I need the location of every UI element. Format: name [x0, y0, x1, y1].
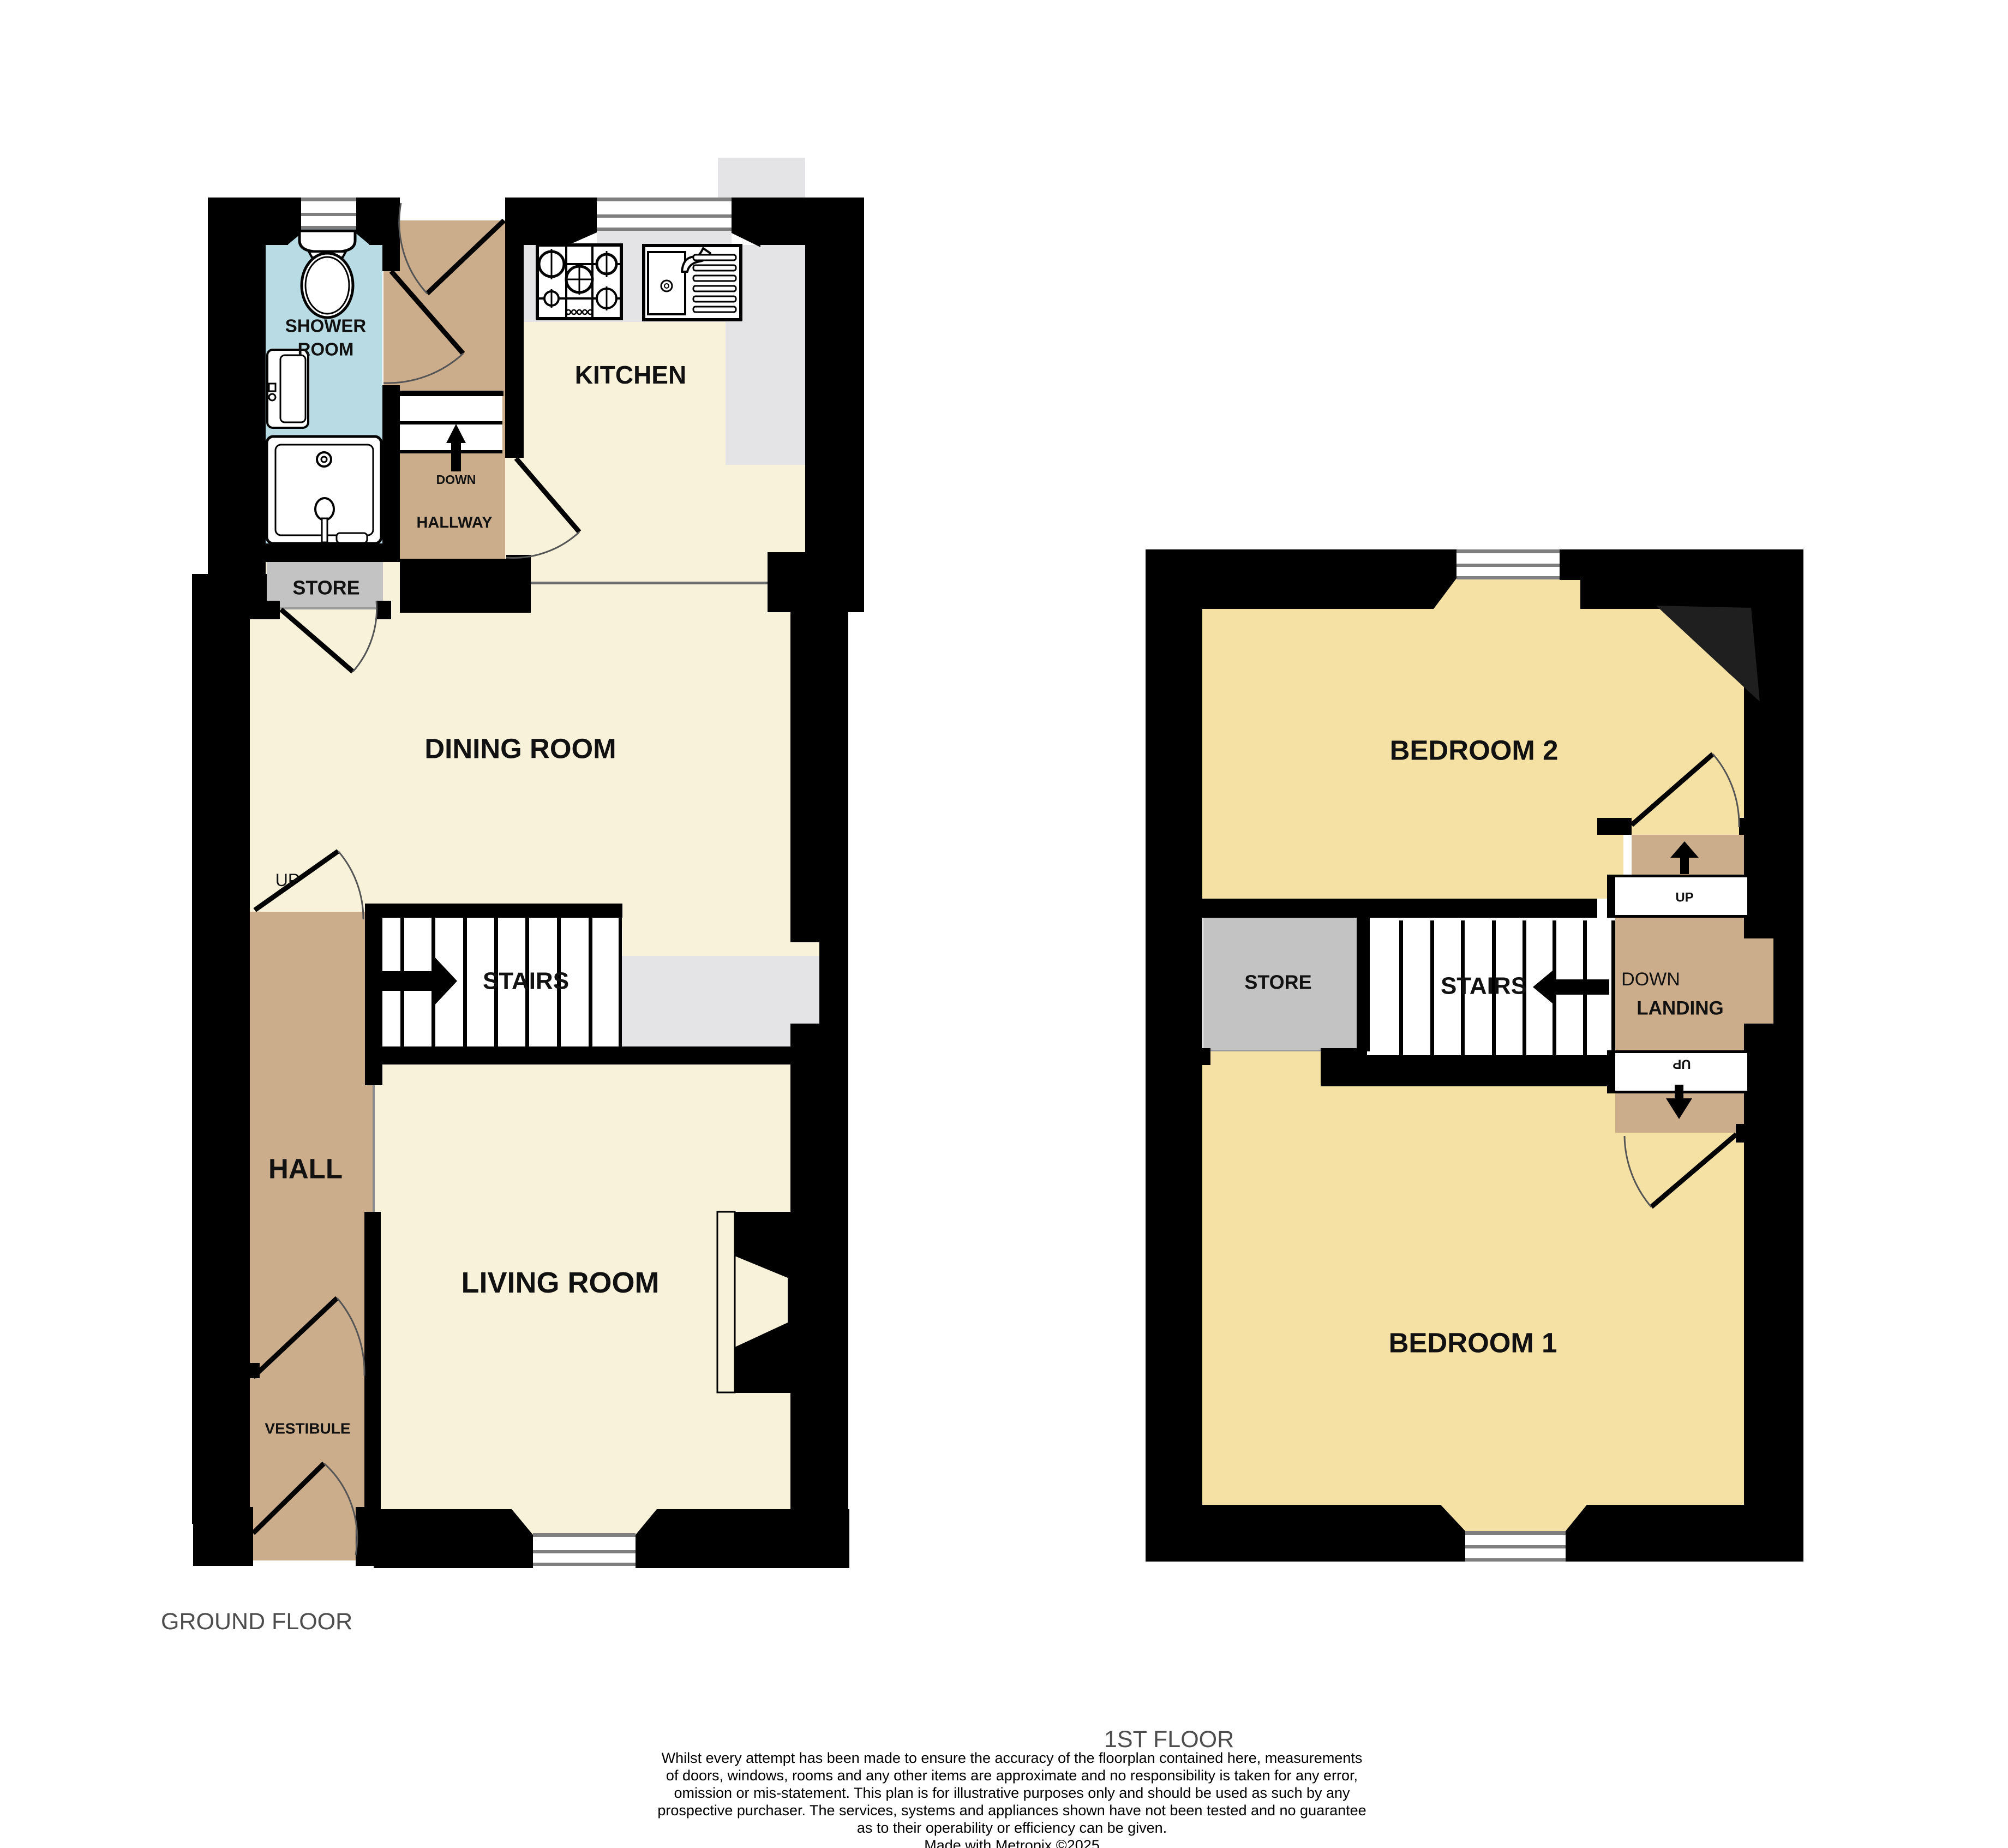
svg-text:ROOM: ROOM [298, 339, 354, 360]
svg-text:Made with Metropix ©2025: Made with Metropix ©2025 [924, 1837, 1100, 1848]
svg-text:Whilst every attempt has been: Whilst every attempt has been made to en… [662, 1750, 1363, 1766]
svg-text:DINING ROOM: DINING ROOM [424, 733, 616, 764]
svg-text:STAIRS: STAIRS [483, 968, 569, 995]
svg-text:SHOWER: SHOWER [285, 316, 367, 336]
svg-text:LANDING: LANDING [1637, 998, 1723, 1019]
svg-text:HALL: HALL [268, 1153, 343, 1185]
svg-text:UP: UP [1673, 1057, 1691, 1072]
svg-text:UP: UP [1675, 890, 1693, 905]
svg-text:of doors, windows, rooms and a: of doors, windows, rooms and any other i… [666, 1767, 1358, 1784]
svg-text:DOWN: DOWN [436, 473, 476, 487]
svg-text:GROUND FLOOR: GROUND FLOOR [161, 1608, 352, 1635]
svg-text:as to their operability or eff: as to their operability or efficiency ca… [857, 1820, 1167, 1836]
svg-text:UP: UP [275, 870, 299, 890]
svg-text:STORE: STORE [1244, 971, 1311, 994]
svg-text:STORE: STORE [292, 577, 359, 599]
svg-text:HALLWAY: HALLWAY [416, 514, 492, 531]
svg-text:BEDROOM 2: BEDROOM 2 [1390, 735, 1559, 766]
svg-text:KITCHEN: KITCHEN [575, 361, 686, 389]
svg-text:prospective purchaser. The ser: prospective purchaser. The services, sys… [657, 1802, 1366, 1819]
svg-text:STAIRS: STAIRS [1441, 973, 1527, 1000]
svg-text:1ST FLOOR: 1ST FLOOR [1104, 1726, 1234, 1753]
svg-text:BEDROOM 1: BEDROOM 1 [1389, 1327, 1557, 1359]
svg-text:omission or mis-statement. Thi: omission or mis-statement. This plan is … [674, 1785, 1350, 1801]
svg-text:VESTIBULE: VESTIBULE [265, 1420, 350, 1437]
svg-text:DOWN: DOWN [1621, 969, 1680, 990]
svg-text:LIVING ROOM: LIVING ROOM [461, 1266, 660, 1299]
